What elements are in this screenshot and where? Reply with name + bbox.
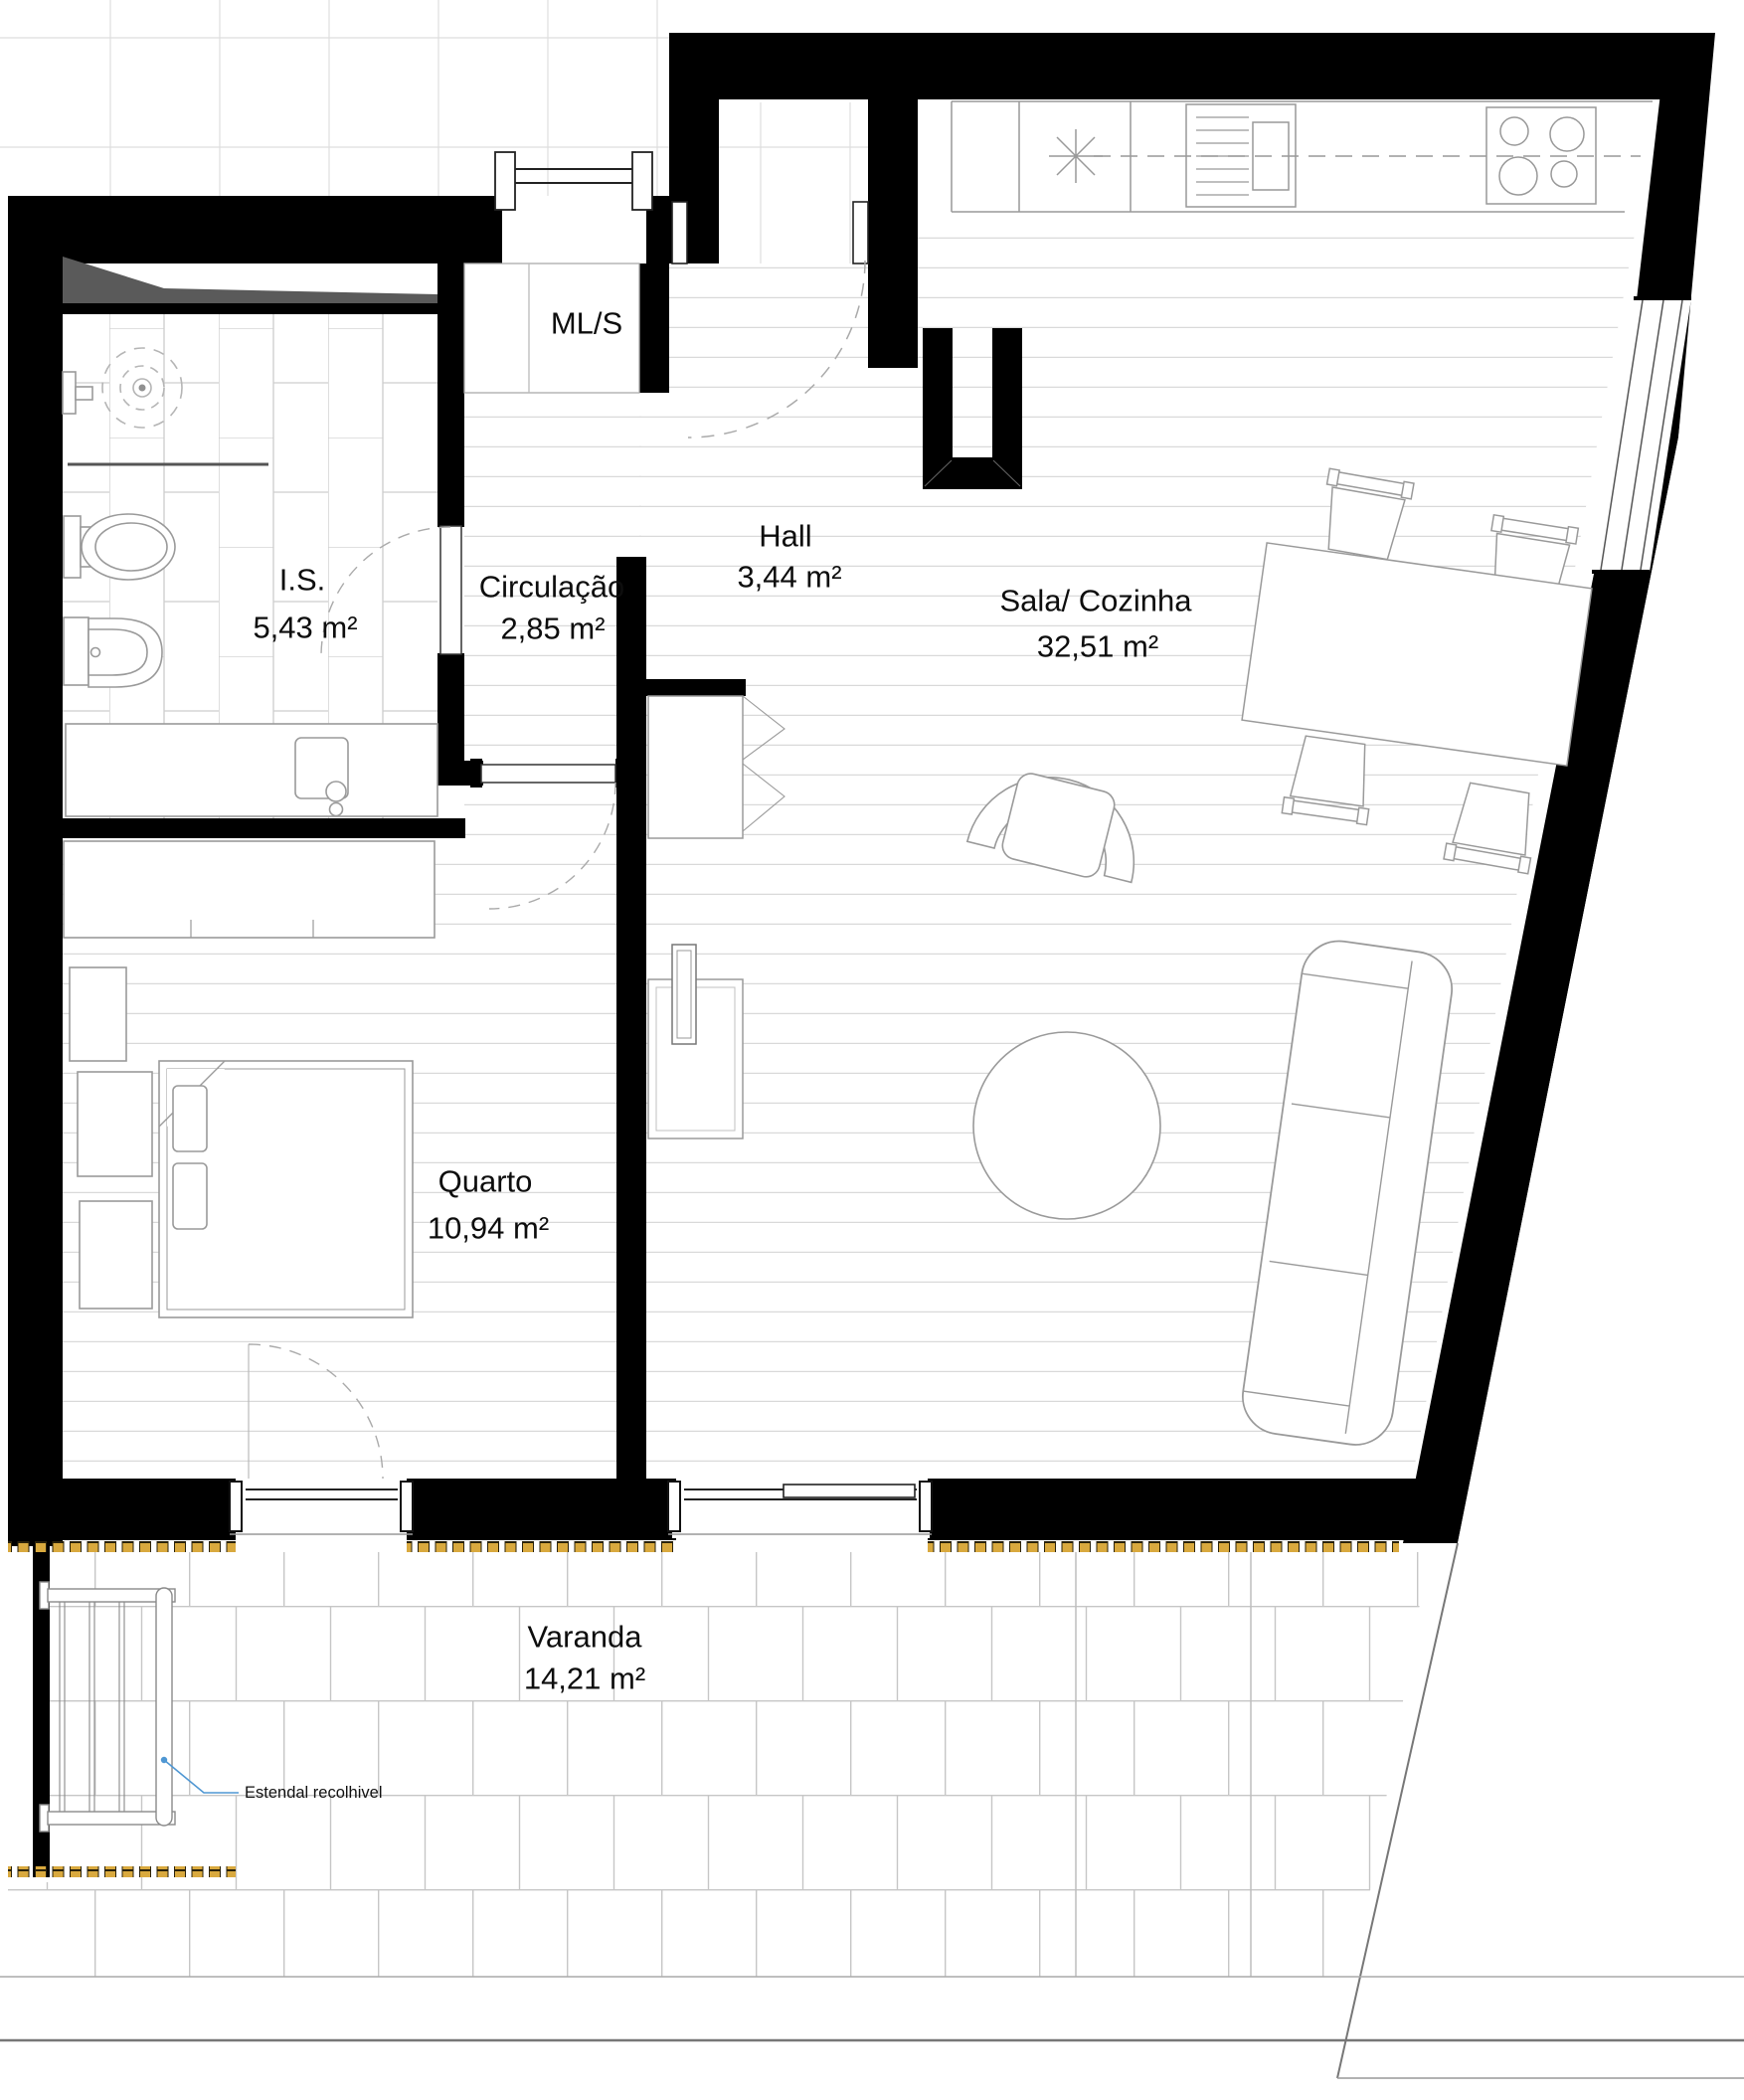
living-balcony-window	[668, 1481, 932, 1538]
wardrobe	[64, 841, 435, 938]
kitchen	[952, 101, 1653, 212]
nightstand	[78, 1072, 152, 1176]
bedside-shelf	[70, 967, 126, 1061]
sink-symbol-icon	[1049, 129, 1103, 183]
vanity	[66, 724, 437, 816]
room-area-quarto: 10,94 m²	[428, 1213, 549, 1244]
room-label-circulacao: Circulação	[479, 572, 624, 603]
shower-valve	[76, 387, 92, 400]
room-label-quarto: Quarto	[438, 1166, 533, 1197]
nightstand	[80, 1201, 152, 1309]
room-area-sala: 32,51 m²	[1037, 631, 1158, 662]
floor-plan: ML/S I.S. 5,43 m² Circulação 2,85 m² Hal…	[0, 0, 1744, 2100]
bedroom-furniture	[64, 841, 435, 1317]
round-table	[973, 1032, 1160, 1219]
closet-label: ML/S	[551, 308, 622, 339]
tall-cabinet	[648, 696, 743, 838]
room-area-varanda: 14,21 m²	[524, 1663, 645, 1694]
room-label-sala: Sala/ Cozinha	[999, 586, 1191, 616]
entry-window	[495, 152, 652, 263]
toilet	[64, 514, 175, 580]
room-label-varanda: Varanda	[528, 1622, 642, 1653]
bidet	[64, 617, 162, 687]
bed	[159, 1061, 413, 1317]
room-area-is: 5,43 m²	[253, 612, 357, 643]
bathroom-slope-wedge	[63, 257, 437, 303]
pillow	[173, 1086, 207, 1151]
faucet	[326, 782, 346, 801]
shower-column	[63, 372, 76, 414]
pillow	[173, 1163, 207, 1229]
estendal-annotation: Estendal recolhivel	[245, 1785, 383, 1802]
kitchen-sink-unit	[1186, 104, 1296, 207]
room-area-hall: 3,44 m²	[737, 562, 841, 593]
balcony-tile-floor	[8, 1552, 1429, 1977]
room-area-circulacao: 2,85 m²	[500, 613, 605, 644]
room-label-hall: Hall	[759, 521, 811, 552]
room-label-is: I.S.	[279, 565, 326, 596]
